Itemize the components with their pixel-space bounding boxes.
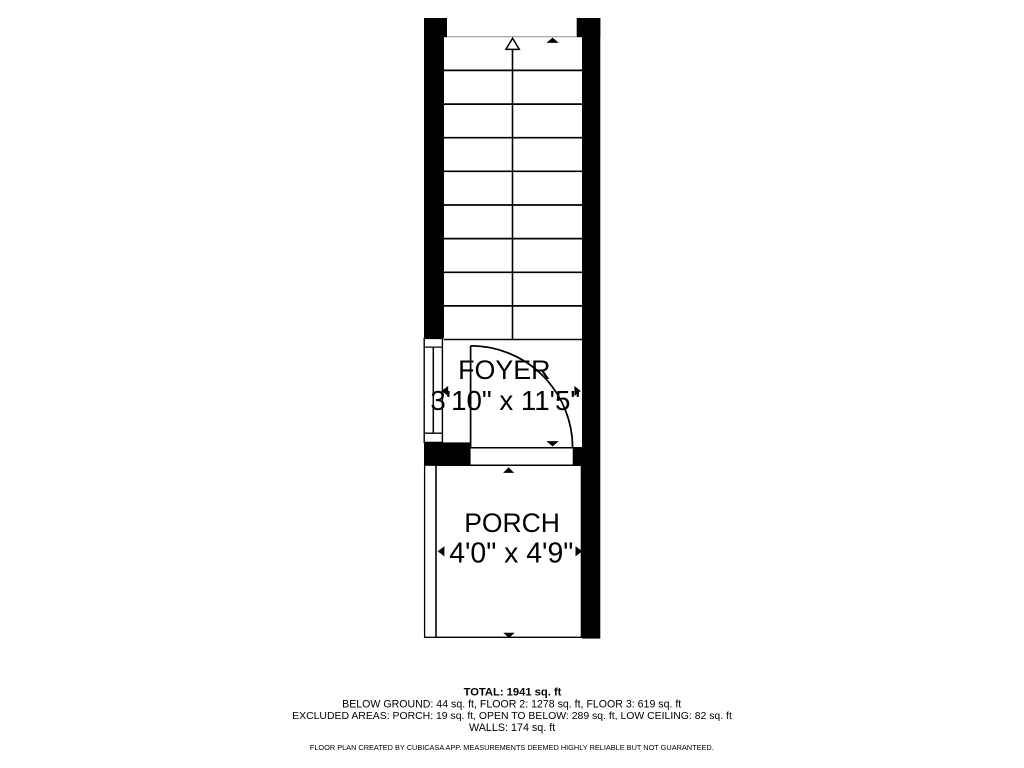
svg-text:BELOW GROUND: 44 sq. ft, FLOOR: BELOW GROUND: 44 sq. ft, FLOOR 2: 1278 s… bbox=[342, 699, 681, 711]
svg-text:PORCH: PORCH bbox=[464, 508, 560, 538]
svg-text:WALLS: 174 sq. ft: WALLS: 174 sq. ft bbox=[469, 722, 555, 734]
svg-text:FLOOR PLAN CREATED BY CUBICASA: FLOOR PLAN CREATED BY CUBICASA APP. MEAS… bbox=[310, 743, 714, 752]
svg-text:TOTAL: 1941 sq. ft: TOTAL: 1941 sq. ft bbox=[464, 687, 562, 699]
svg-text:FOYER: FOYER bbox=[458, 355, 550, 385]
svg-text:3'10" x 11'5": 3'10" x 11'5" bbox=[430, 385, 580, 416]
svg-text:4'0" x 4'9": 4'0" x 4'9" bbox=[449, 537, 573, 569]
svg-text:EXCLUDED AREAS: PORCH: 19 sq.: EXCLUDED AREAS: PORCH: 19 sq. ft, OPEN T… bbox=[292, 711, 732, 722]
